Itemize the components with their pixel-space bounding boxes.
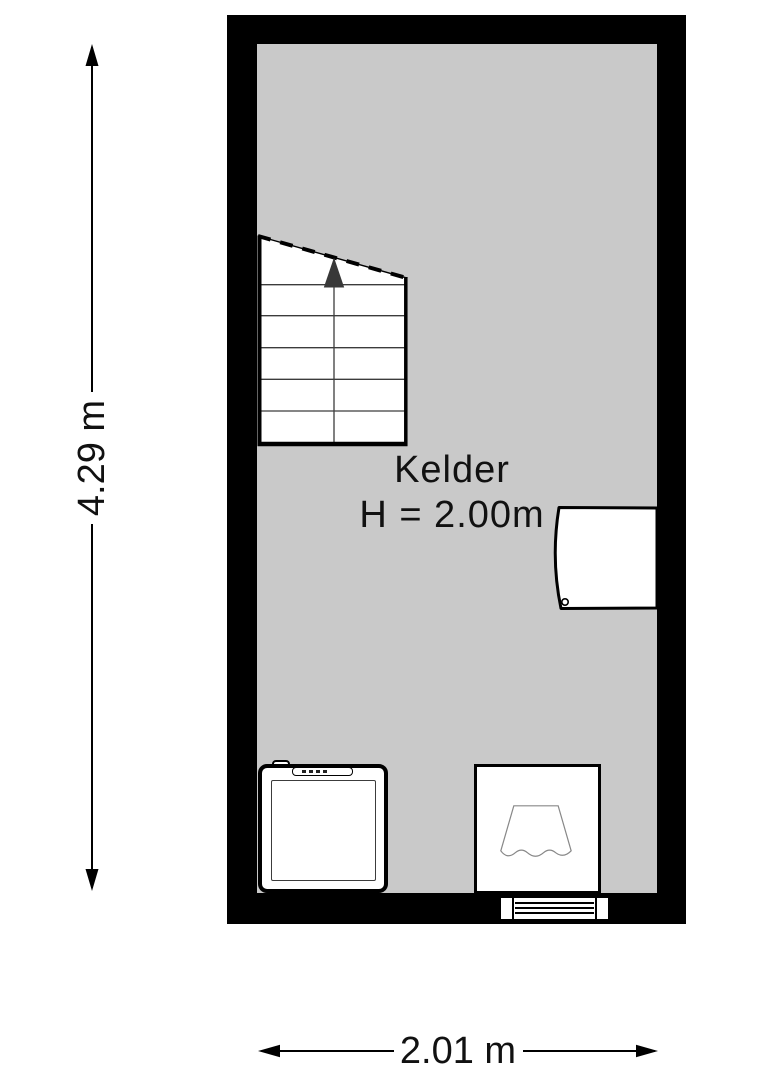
arrow-up-icon [86, 44, 99, 66]
arrow-right-icon [636, 1045, 658, 1057]
appliance-left-control-marks [302, 770, 330, 773]
room-height-label: H = 2.00m [302, 493, 602, 538]
sink-water-wave [501, 850, 572, 856]
appliance-left [258, 764, 388, 893]
appliance-left-lid [271, 780, 376, 881]
horizontal-dimension-label: 2.01 m [380, 1030, 536, 1073]
arrow-left-icon [258, 1045, 280, 1057]
vent-mullion-left [512, 898, 514, 919]
vent-slat [515, 907, 594, 909]
floor-plan-page: Kelder H = 2.00m 4.29 m 2.01 m [0, 0, 763, 1080]
vent-mullion-right [595, 898, 597, 919]
room-name: Kelder [302, 448, 602, 493]
room-label: Kelder H = 2.00m [302, 448, 602, 538]
vertical-dimension-label: 4.29 m [72, 388, 112, 528]
arrow-down-icon [86, 869, 99, 891]
vent-slat [515, 912, 594, 914]
vent-slat [515, 902, 594, 904]
sink-symbol [477, 767, 598, 891]
appliance-left-control-panel [292, 767, 353, 776]
appliance-right [474, 764, 601, 894]
sink-basin-outline [501, 806, 572, 851]
louvered-window-icon [499, 896, 610, 921]
